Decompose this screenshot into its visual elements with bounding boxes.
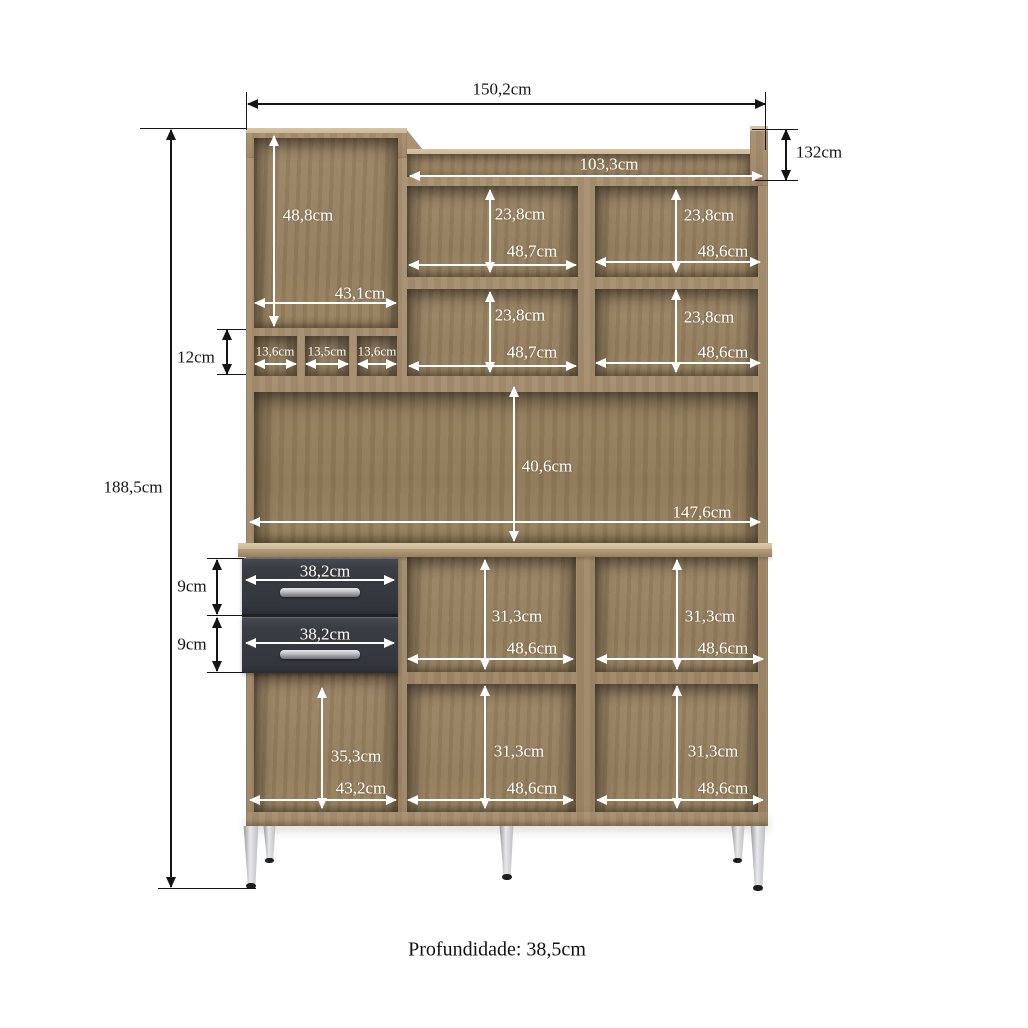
- dim-cubby2-width-arrow: [306, 363, 348, 365]
- dim-row2-left-height-label: 23,8cm: [495, 307, 546, 324]
- dim-row1-left-width-label: 48,7cm: [507, 243, 558, 260]
- dim-base-top-mid-width-arrow: [408, 658, 573, 660]
- dim-top-shelf-width-arrow: [410, 175, 762, 177]
- dim-mid-open-width-label: 147,6cm: [672, 504, 731, 521]
- dim-row2-right-width-arrow: [596, 362, 760, 364]
- dim-base-bot-mid-width-label: 48,6cm: [507, 780, 558, 797]
- dim-top-shelf-width-label: 103,3cm: [579, 156, 638, 173]
- dim-row2-left-height-arrow: [489, 292, 491, 372]
- depth-caption: Profundidade: 38,5cm: [408, 939, 586, 962]
- dim-row1-left-height-arrow: [489, 190, 491, 272]
- dimension-annotations: 150,2cm188,5cm132cm12cm9cm9cm103,3cm48,8…: [0, 0, 1028, 1028]
- dim-row2-left-width-arrow: [409, 365, 576, 367]
- dim-cubby1-width-arrow: [255, 363, 296, 365]
- dim-mid-open-height-arrow: [513, 387, 515, 541]
- dim-height-total-label: 188,5cm: [103, 479, 162, 496]
- dim-row1-right-width-arrow: [596, 261, 760, 263]
- dim-base-top-mid-height-arrow: [484, 560, 486, 669]
- dim-base-bot-left-height-arrow: [321, 688, 323, 808]
- dim-base-bot-right-height-label: 31,3cm: [688, 743, 739, 760]
- dim-base-bot-mid-height-label: 31,3cm: [494, 743, 545, 760]
- dim-width-total-label: 150,2cm: [472, 81, 531, 98]
- dim-row1-left-height-label: 23,8cm: [495, 206, 546, 223]
- dim-row1-right-height-arrow: [675, 190, 677, 272]
- dim-cubby2-width-label: 13,5cm: [308, 345, 347, 358]
- dim-drawer2-height-arrow: [216, 618, 218, 671]
- dim-row1-right-width-label: 48,6cm: [698, 243, 749, 260]
- dim-drawer2-height-label: 9cm: [177, 636, 206, 653]
- dim-base-top-mid-height-label: 31,3cm: [492, 608, 543, 625]
- dim-row2-right-width-label: 48,6cm: [698, 344, 749, 361]
- dim-height-total-arrow: [170, 130, 172, 887]
- dim-base-bot-left-height-label: 35,3cm: [331, 748, 382, 765]
- furniture-dimension-diagram: 150,2cm188,5cm132cm12cm9cm9cm103,3cm48,8…: [0, 0, 1028, 1028]
- dim-row2-right-height-arrow: [675, 290, 677, 372]
- dim-base-top-right-width-label: 48,6cm: [698, 640, 749, 657]
- dim-cubby3-width-arrow: [358, 363, 396, 365]
- dim-drawer2-width-label: 38,2cm: [300, 626, 351, 643]
- dim-drawer1-height-arrow: [216, 560, 218, 614]
- dim-cubby-height-arrow: [226, 330, 228, 374]
- dim-width-total-arrow: [248, 103, 765, 105]
- dim-tall-comp-height-arrow: [273, 136, 275, 326]
- dim-base-top-right-height-label: 31,3cm: [685, 608, 736, 625]
- dim-height-total-ext-0: [140, 128, 246, 129]
- dim-base-bot-mid-height-arrow: [484, 686, 486, 808]
- dim-height-total-ext-1: [158, 888, 256, 889]
- dim-base-bot-right-width-arrow: [597, 799, 763, 801]
- dim-base-top-right-width-arrow: [597, 658, 763, 660]
- dim-drawer1-height-label: 9cm: [177, 578, 206, 595]
- dim-drawer1-width-label: 38,2cm: [300, 563, 351, 580]
- dim-row2-right-height-label: 23,8cm: [684, 309, 735, 326]
- dim-top-right-height-arrow: [785, 130, 787, 180]
- dim-mid-open-height-label: 40,6cm: [522, 458, 573, 475]
- dim-base-bot-right-height-arrow: [676, 686, 678, 808]
- dim-row1-left-width-arrow: [409, 264, 576, 266]
- dim-tall-comp-width-label: 43,1cm: [335, 285, 386, 302]
- dim-row1-right-height-label: 23,8cm: [684, 207, 735, 224]
- dim-base-bot-left-width-arrow: [250, 799, 396, 801]
- dim-base-bot-left-width-label: 43,2cm: [336, 780, 387, 797]
- dim-cubby3-width-label: 13,6cm: [358, 345, 397, 358]
- dim-tall-comp-height-label: 48,8cm: [283, 207, 334, 224]
- dim-drawer1-height-ext-1: [207, 615, 244, 616]
- dim-base-top-mid-width-label: 48,6cm: [507, 640, 558, 657]
- dim-drawer2-height-ext-0: [207, 672, 244, 673]
- dim-top-right-height-label: 132cm: [796, 144, 842, 161]
- dim-row2-left-width-label: 48,7cm: [507, 344, 558, 361]
- dim-base-top-right-height-arrow: [676, 560, 678, 669]
- dim-cubby1-width-label: 13,6cm: [256, 345, 295, 358]
- dim-base-bot-right-width-label: 48,6cm: [698, 780, 749, 797]
- dim-top-right-height-ext-0: [752, 129, 798, 130]
- dim-cubby-height-label: 12cm: [177, 349, 215, 366]
- dim-base-bot-mid-width-arrow: [408, 799, 573, 801]
